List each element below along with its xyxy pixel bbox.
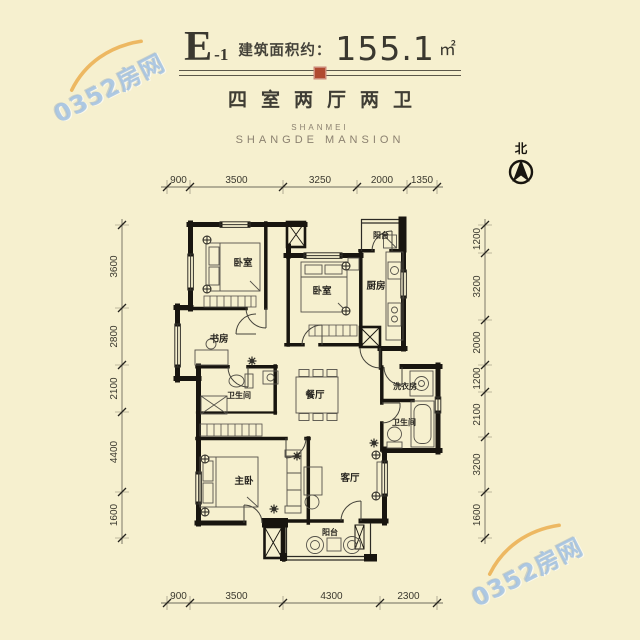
room-label-balcony-bottom: 阳台 [322, 527, 338, 537]
room-label-kitchen: 厨房 [366, 280, 385, 292]
dim-left-2: 2100 [109, 377, 120, 400]
room-label-master-bedroom: 主卧 [234, 475, 254, 487]
dimension-lines [122, 187, 485, 603]
interior-walls [177, 223, 413, 560]
dim-right-2: 2000 [472, 331, 483, 354]
dim-bottom-3: 2300 [397, 591, 420, 602]
dim-left-1: 2800 [109, 325, 120, 348]
dim-right-0: 1200 [472, 227, 483, 250]
dim-top-4: 1350 [411, 175, 434, 186]
room-label-bedroom-top-left: 卧室 [233, 257, 253, 269]
room-label-study: 书房 [209, 333, 228, 345]
dim-bottom-0: 900 [170, 591, 187, 602]
room-label-balcony-top: 阳台 [373, 230, 389, 240]
dim-bottom-1: 3500 [225, 591, 248, 602]
dim-right-5: 3200 [472, 453, 483, 476]
plant-icons [248, 357, 379, 514]
room-label-laundry-room: 洗衣房 [393, 381, 417, 391]
dim-top-1: 3500 [225, 175, 248, 186]
dim-top-3: 2000 [371, 175, 394, 186]
room-label-bathroom-right: 卫生间 [392, 417, 416, 427]
dim-left-3: 4400 [109, 440, 120, 463]
dim-right-3: 1200 [472, 367, 483, 390]
room-label-bedroom-middle: 卧室 [312, 285, 332, 297]
compass-label: 北 [515, 141, 528, 156]
dim-bottom-2: 4300 [320, 591, 343, 602]
dim-left-0: 3600 [109, 255, 120, 278]
room-label-dining-room: 餐厅 [304, 389, 325, 401]
dim-top-2: 3250 [309, 175, 332, 186]
dim-left-4: 1600 [109, 503, 120, 526]
dim-right-6: 1600 [472, 503, 483, 526]
room-label-living-room: 客厅 [339, 472, 360, 484]
floor-plan: 北 [0, 0, 640, 640]
dim-right-4: 2100 [472, 403, 483, 426]
compass: 北 [510, 141, 532, 183]
room-label-bathroom-left: 卫生间 [227, 390, 251, 400]
dim-top-0: 900 [170, 175, 187, 186]
floorplan-page: 0352房网 0352房网 E -1 建筑面积约： 155.1 ㎡ 四室两厅两卫… [0, 0, 640, 640]
dim-right-1: 3200 [472, 275, 483, 298]
